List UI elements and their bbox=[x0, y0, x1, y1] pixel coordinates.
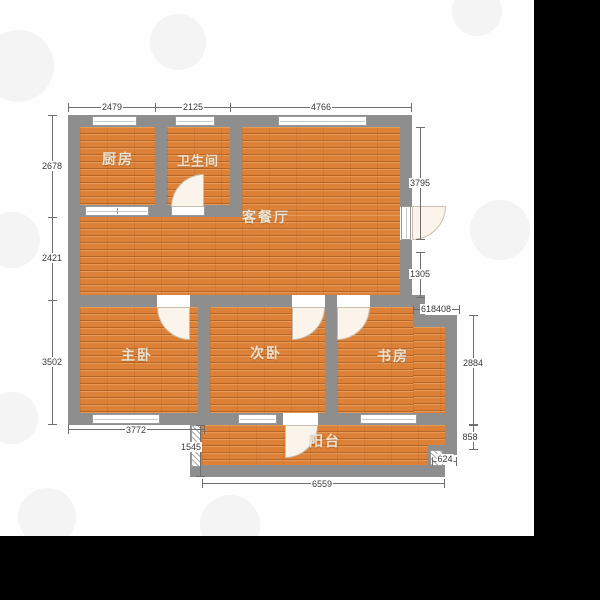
room-label-bathroom: 卫生间 bbox=[177, 151, 219, 170]
wall bbox=[230, 115, 242, 217]
dimension-label: 6559 bbox=[311, 479, 333, 489]
dimension-label: 2678 bbox=[41, 161, 63, 171]
sliding-door bbox=[85, 206, 149, 216]
floor-study-ext bbox=[413, 327, 445, 413]
window bbox=[92, 414, 160, 424]
watermark bbox=[0, 392, 38, 444]
wall bbox=[400, 115, 412, 207]
floor-balcony-lower bbox=[202, 453, 430, 465]
dimension-label: 3795 bbox=[409, 178, 431, 188]
dimension-label: 2125 bbox=[182, 102, 204, 112]
dimension-label: 1305 bbox=[409, 269, 431, 279]
dimension-label: 618408 bbox=[420, 304, 452, 314]
wall bbox=[445, 315, 457, 450]
dimension-label: 2479 bbox=[101, 102, 123, 112]
watermark bbox=[0, 212, 40, 268]
dimension-label: 858 bbox=[461, 432, 478, 442]
dimension-label: 2421 bbox=[41, 253, 63, 263]
screenshot-root: { "plan": { "rooms": [ {"id": "kitchen",… bbox=[0, 0, 600, 600]
entry-door-leaf bbox=[401, 206, 411, 240]
door-opening bbox=[283, 413, 318, 425]
wall bbox=[68, 295, 157, 307]
room-label-master-bedroom: 主卧 bbox=[121, 345, 153, 365]
wall bbox=[325, 295, 337, 425]
window bbox=[278, 116, 367, 126]
wall bbox=[370, 295, 413, 307]
door-arc-entry bbox=[412, 206, 446, 240]
watermark bbox=[18, 488, 76, 536]
watermark bbox=[452, 0, 502, 36]
room-label-balcony: 阳台 bbox=[309, 431, 341, 451]
dimension-tick bbox=[48, 217, 57, 218]
watermark bbox=[150, 14, 206, 70]
door-leaf bbox=[171, 206, 205, 216]
room-label-kitchen: 厨房 bbox=[102, 149, 134, 169]
dimension-label: 2884 bbox=[462, 358, 484, 368]
wall bbox=[155, 115, 167, 217]
window bbox=[360, 414, 417, 424]
room-label-study: 书房 bbox=[377, 346, 409, 366]
floor-living-lower bbox=[80, 215, 400, 295]
dimension-tick bbox=[48, 300, 57, 301]
window bbox=[92, 116, 137, 126]
dimension-label: 3502 bbox=[41, 357, 63, 367]
watermark bbox=[470, 200, 530, 260]
room-label-living-dining: 客餐厅 bbox=[242, 207, 290, 227]
dimension-label: 4766 bbox=[310, 102, 332, 112]
dimension-tick bbox=[230, 103, 231, 112]
floorplan-canvas: 2479 2125 4766 2678 2421 3502 3795 1305 … bbox=[0, 0, 534, 536]
dimension-line bbox=[473, 315, 474, 425]
room-label-second-bedroom: 次卧 bbox=[250, 343, 282, 363]
wall bbox=[198, 295, 210, 425]
wall bbox=[68, 115, 80, 425]
window bbox=[175, 116, 215, 126]
watermark bbox=[0, 30, 54, 102]
window bbox=[238, 414, 277, 424]
dimension-label: 3772 bbox=[125, 425, 147, 435]
dimension-tick bbox=[155, 103, 156, 112]
floor-living-upper bbox=[242, 127, 400, 215]
watermark bbox=[200, 495, 260, 536]
dimension-label: 1545 bbox=[180, 442, 202, 452]
dimension-label: 624 bbox=[436, 454, 453, 464]
wall bbox=[190, 465, 445, 477]
